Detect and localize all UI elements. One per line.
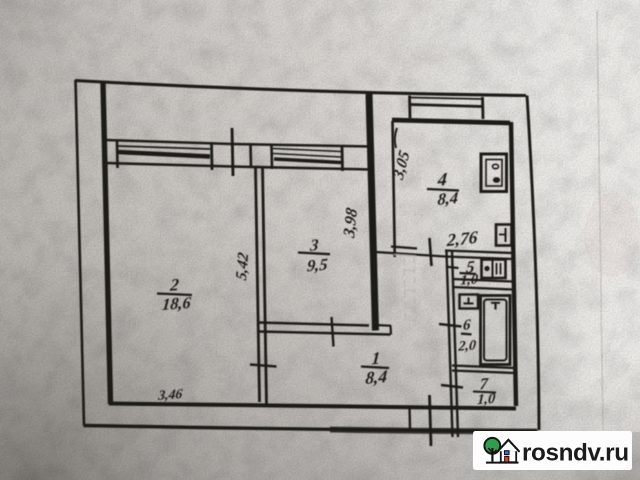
svg-text:3,98: 3,98 xyxy=(339,205,361,240)
svg-text:2,76: 2,76 xyxy=(446,227,479,250)
svg-text:4: 4 xyxy=(436,169,448,191)
svg-text:2,0: 2,0 xyxy=(457,337,477,355)
svg-text:5,42: 5,42 xyxy=(233,251,252,282)
svg-text:8,4: 8,4 xyxy=(365,366,388,388)
svg-text:1: 1 xyxy=(371,348,381,369)
svg-text:1,0: 1,0 xyxy=(477,391,497,409)
svg-text:1,0: 1,0 xyxy=(460,271,479,289)
svg-text:3: 3 xyxy=(309,235,320,255)
svg-text:18,6: 18,6 xyxy=(161,293,192,314)
svg-text:3,46: 3,46 xyxy=(157,387,183,404)
svg-text:9,5: 9,5 xyxy=(306,255,328,276)
svg-text:rosndv.ru: rosndv.ru xyxy=(522,440,629,467)
svg-text:8,4: 8,4 xyxy=(437,188,459,209)
